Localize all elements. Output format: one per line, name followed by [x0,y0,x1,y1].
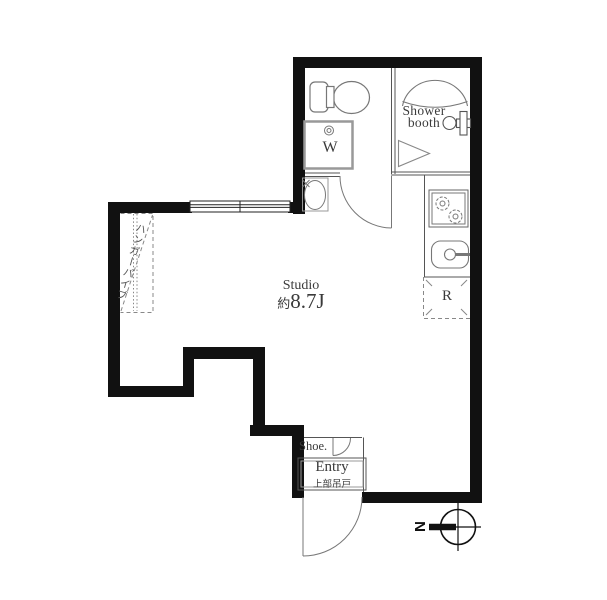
floor-plan: Shower booth W R Studio 約8.7J Shoe. Entr… [0,0,607,600]
wall-top [293,57,482,68]
entry-note-label: 上部吊戸 [300,476,364,490]
room-area-prefix: 約 [277,296,290,311]
shower-door [399,141,430,167]
window [190,201,290,212]
shoe-storage-label: Shoe. [299,439,327,454]
shower-booth-label-line2: booth [396,117,452,129]
wash-basin [303,178,329,211]
wall-step-horizontal-1 [183,347,265,359]
compass [429,503,481,551]
kitchen-sink [432,241,471,268]
toilet [310,82,370,114]
wall-main-top-left [108,202,192,213]
toilet-bowl [334,82,370,114]
wall-upper-left [293,57,305,214]
toilet-flush [327,87,335,108]
shower-booth-label: Shower booth [396,105,452,128]
sink-faucet-icon [445,249,456,260]
stove [429,190,468,227]
washer-label: W [316,139,344,157]
refrigerator-label: R [433,288,461,305]
room-area-value: 8.7J [290,289,324,313]
bathroom-door [340,176,392,228]
toilet-tank [310,82,328,112]
wall-bottom [362,492,482,503]
burner-icon [449,210,462,223]
wall-right [470,57,482,503]
shoe-door [333,438,351,456]
wall-bottom-left [108,386,194,397]
burner-icon [436,197,449,210]
entry-label: Entry [300,460,364,475]
entry-door [303,497,362,556]
wall-step-vertical-2 [253,347,265,436]
compass-north-label: N [411,521,428,532]
entry-area [298,438,366,557]
room-area-label: 約8.7J [252,290,350,315]
